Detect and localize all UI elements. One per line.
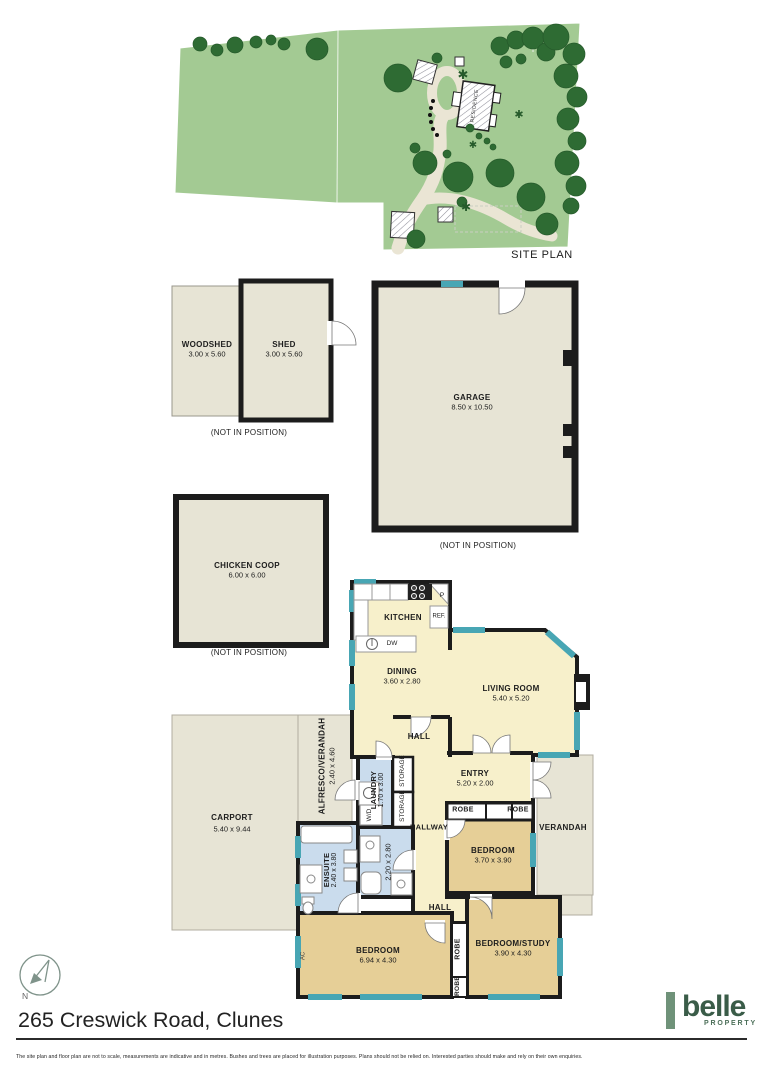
label-storage-a: STORAGE xyxy=(399,755,407,787)
label-hall-lower: HALL xyxy=(429,903,452,913)
label-shed-dims: 3.00 x 5.60 xyxy=(265,349,302,358)
label-study-dims: 3.90 x 4.30 xyxy=(494,948,531,957)
label-bedroom1-dims: 3.70 x 3.90 xyxy=(474,855,511,864)
svg-text:✱: ✱ xyxy=(469,140,477,151)
label-chicken-coop-dims: 6.00 x 6.00 xyxy=(228,570,265,579)
label-dining-dims: 3.60 x 2.80 xyxy=(383,676,420,685)
disclaimer-text: The site plan and floor plan are not to … xyxy=(16,1054,583,1060)
label-carport-dims: 5.40 x 9.44 xyxy=(213,824,250,833)
svg-text:✱: ✱ xyxy=(458,67,469,82)
label-entry-dims: 5.20 x 2.00 xyxy=(456,778,493,787)
label-bedroom2-dims: 6.94 x 4.30 xyxy=(359,955,396,964)
label-washer-dryer: W/D xyxy=(366,809,374,822)
garage-door-gap xyxy=(499,279,525,288)
label-kitchen: KITCHEN xyxy=(384,613,422,623)
north-label: N xyxy=(22,991,28,1001)
belle-logo-sub: PROPERTY xyxy=(704,1020,757,1027)
label-woodshed-dims: 3.00 x 5.60 xyxy=(188,349,225,358)
svg-text:✱: ✱ xyxy=(461,200,471,214)
label-living-dims: 5.40 x 5.20 xyxy=(492,693,529,702)
label-hallway: HALLWAY xyxy=(410,822,448,831)
garage-window xyxy=(441,281,463,287)
label-robe-a: ROBE xyxy=(452,807,473,816)
svg-text:✱: ✱ xyxy=(514,109,523,121)
plan-graphics: RESIDENCE ✱ ✱ ✱ ✱ xyxy=(0,0,763,1080)
label-robe-d: ROBE xyxy=(454,976,462,996)
label-not-in-position-2: (NOT IN POSITION) xyxy=(440,541,516,551)
label-fridge: REF. xyxy=(432,613,445,621)
label-carport: CARPORT xyxy=(211,813,253,823)
fireplace xyxy=(574,674,590,710)
label-hall-upper: HALL xyxy=(408,732,431,742)
site-plan-label: SITE PLAN xyxy=(511,249,573,263)
label-alfresco: ALFRESCO/VERANDAH 2.40 x 4.60 xyxy=(317,718,336,815)
label-robe-c: ROBE xyxy=(455,938,464,959)
label-ac: AC xyxy=(300,952,308,960)
label-bathroom-dims: 2.20 x 2.80 xyxy=(383,843,392,880)
site-plan-graphic: RESIDENCE ✱ ✱ ✱ ✱ xyxy=(175,23,587,250)
label-robe-b: ROBE xyxy=(507,807,528,816)
label-not-in-position-1: (NOT IN POSITION) xyxy=(211,428,287,438)
belle-logo-bar xyxy=(666,992,675,1029)
label-ensuite: ENSUITE 2.40 x 3.80 xyxy=(322,853,340,888)
belle-logo-name: belle xyxy=(682,990,745,1024)
label-laundry: LAUNDRY 1.70 x 3.00 xyxy=(369,771,387,810)
shed-door-swing xyxy=(332,321,356,345)
label-garage-dims: 8.50 x 10.50 xyxy=(451,402,492,411)
page-title: 265 Creswick Road, Clunes xyxy=(18,1008,283,1033)
label-storage-b: STORAGE xyxy=(399,790,407,822)
label-pantry: P xyxy=(440,592,444,600)
label-verandah: VERANDAH xyxy=(539,823,587,833)
floorplan-page: RESIDENCE ✱ ✱ ✱ ✱ xyxy=(0,0,763,1080)
footer-divider xyxy=(16,1038,747,1040)
label-dishwasher: DW xyxy=(387,640,398,648)
label-not-in-position-3: (NOT IN POSITION) xyxy=(211,648,287,658)
north-compass-icon: N xyxy=(20,955,60,1001)
